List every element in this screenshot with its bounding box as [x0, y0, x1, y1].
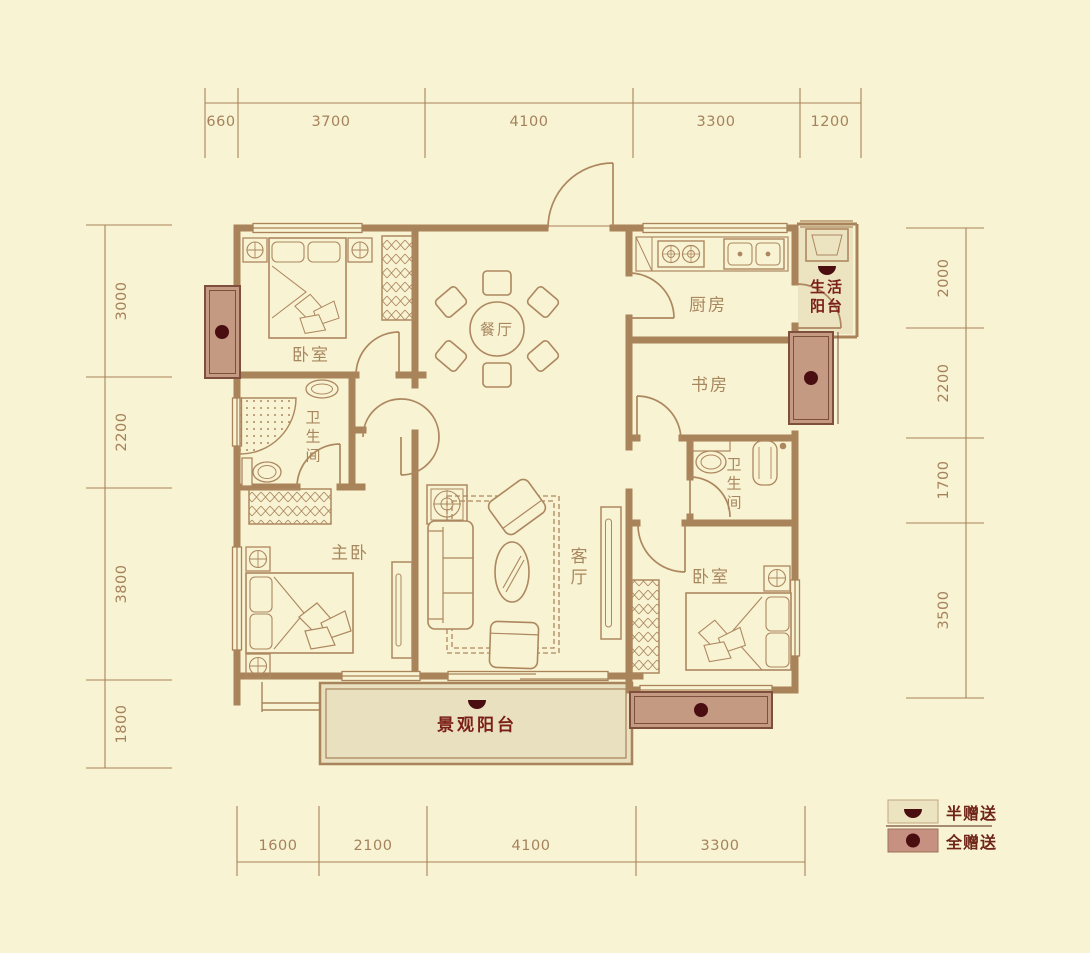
sofa-icon [428, 521, 473, 629]
furniture [240, 229, 848, 678]
bay-window-study [789, 332, 838, 424]
label-dining-room: 餐厅 [480, 319, 514, 340]
label-kitchen: 厨房 [689, 291, 727, 316]
full-gift-dot-icon [694, 703, 708, 717]
label-bathroom-left: 卫生间 [303, 410, 324, 467]
dim-bottom-1: 1600 [259, 838, 298, 854]
toilet-icon [242, 458, 252, 486]
armchair-icon [489, 621, 539, 669]
bedroom2-door [638, 525, 685, 572]
shower-icon [240, 398, 296, 454]
label-living-room: 客厅 [565, 547, 590, 589]
bay-window-bedroom1 [205, 286, 240, 378]
label-service-balcony: 生活 阳台 [810, 278, 844, 316]
kitchen-counter [636, 237, 788, 271]
bed-icon [686, 593, 791, 670]
dim-left-3: 3800 [114, 565, 130, 604]
toilet-icon [692, 441, 730, 451]
dim-right-4: 3500 [936, 591, 952, 630]
dim-left-4: 1800 [114, 705, 130, 744]
kitchen-door [629, 273, 674, 318]
legend-full-gift-label: 全赠送 [946, 829, 997, 853]
armchair-icon [486, 477, 548, 538]
dim-right-2: 2200 [936, 364, 952, 403]
label-view-balcony: 景观阳台 [437, 711, 517, 736]
entry-door [548, 163, 613, 228]
label-bathroom-right: 卫生间 [724, 457, 745, 514]
label-service-balcony-line1: 生活 [810, 278, 844, 297]
label-study: 书房 [691, 371, 729, 396]
full-gift-dot-icon [906, 834, 920, 848]
legend-half-gift-label: 半赠送 [946, 800, 997, 824]
full-gift-dot-icon [215, 325, 229, 339]
coffee-table-icon [495, 542, 529, 602]
dim-left-2: 2200 [114, 413, 130, 452]
label-bedroom-top-left: 卧室 [292, 341, 330, 366]
bed-icon [269, 238, 346, 338]
water-heater-icon [753, 441, 777, 485]
dim-top-5: 1200 [811, 114, 850, 130]
master-door [363, 399, 439, 475]
living-room-furniture [427, 477, 621, 669]
master-bedroom-furniture [246, 489, 412, 678]
label-bedroom-bottom-right: 卧室 [692, 563, 730, 588]
full-gift-dot-icon [804, 371, 818, 385]
dim-bottom-4: 3300 [701, 838, 740, 854]
dim-top-2: 3700 [312, 114, 351, 130]
dim-left-1: 3000 [114, 282, 130, 321]
study-door [637, 396, 681, 440]
bed-icon [246, 573, 353, 653]
label-master-bedroom: 主卧 [331, 539, 369, 564]
wardrobe-icon [249, 489, 331, 524]
wardrobe-icon [632, 580, 659, 673]
bay-window-bedroom2 [630, 692, 772, 728]
tv-cabinet-icon [392, 562, 412, 658]
wardrobe-icon [382, 236, 414, 320]
dim-bottom-2: 2100 [354, 838, 393, 854]
floorplan-page: 660 3700 4100 3300 1200 1600 2100 4100 3… [0, 0, 1090, 953]
dim-right-3: 1700 [936, 461, 952, 500]
dim-right-1: 2000 [936, 259, 952, 298]
dim-bottom-3: 4100 [512, 838, 551, 854]
floorplan-drawing [0, 0, 1090, 953]
dim-top-1: 660 [206, 114, 235, 130]
dim-top-3: 4100 [510, 114, 549, 130]
bedroom1-door [356, 332, 399, 375]
bedroom1-furniture [243, 236, 414, 338]
dim-top-4: 3300 [697, 114, 736, 130]
sink-icon [306, 380, 338, 398]
tv-cabinet-icon [601, 507, 621, 639]
label-service-balcony-line2: 阳台 [810, 297, 844, 316]
